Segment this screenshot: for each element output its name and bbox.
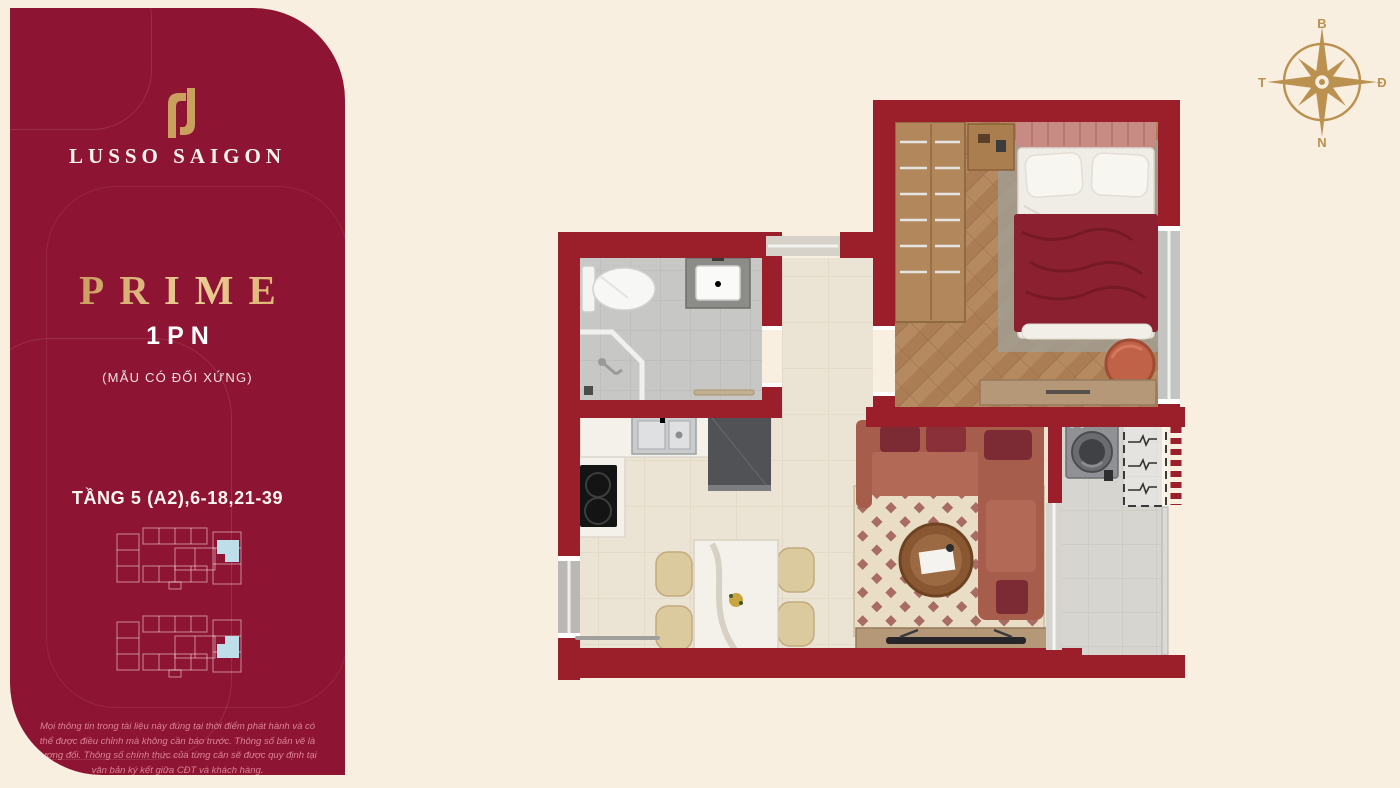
decorative-arc	[10, 8, 152, 130]
toilet	[582, 266, 655, 312]
kitchen-tall-cabinet	[708, 413, 771, 491]
page: LUSSO SAIGON PRIME 1PN (MẪU CÓ ĐỐI XỨNG)…	[0, 0, 1400, 788]
bedroom-dresser	[980, 380, 1156, 405]
plan-type: 1PN	[10, 322, 345, 351]
building-keyplan	[93, 526, 263, 694]
keyplan-floor-1	[117, 528, 241, 589]
compass-points	[1267, 27, 1377, 137]
coffee-table	[900, 524, 972, 596]
compass-south-label: N	[1317, 135, 1326, 150]
towel-rail	[694, 390, 754, 395]
compass-east-label: Đ	[1377, 75, 1386, 90]
dining-chair	[656, 552, 692, 596]
brand-panel: LUSSO SAIGON PRIME 1PN (MẪU CÓ ĐỐI XỨNG)…	[10, 8, 345, 775]
window-sill-rail	[575, 636, 660, 640]
plan-note: (MẪU CÓ ĐỐI XỨNG)	[10, 370, 345, 385]
cooktop	[580, 465, 617, 527]
floorplan	[550, 90, 1195, 690]
lusso-logo-icon	[156, 86, 200, 140]
compass-north-label: B	[1317, 16, 1326, 31]
keyplan-highlight-unit	[217, 540, 239, 562]
washing-machine	[1066, 420, 1118, 481]
floors-label: TẦNG 5 (A2),6-18,21-39	[10, 488, 345, 509]
plan-name: PRIME	[10, 266, 345, 314]
disclaimer-text: Mọi thông tin trong tài liệu này đúng tạ…	[38, 720, 317, 775]
keyplan-highlight-unit	[217, 636, 239, 658]
hallway-floor	[782, 258, 873, 427]
brand-name: LUSSO SAIGON	[10, 144, 345, 169]
bed	[1014, 120, 1158, 339]
compass-rose: B Đ N T	[1254, 14, 1390, 150]
wardrobe	[895, 122, 965, 322]
bathroom-sink	[686, 256, 750, 308]
compass-west-label: T	[1258, 75, 1266, 90]
dining-chair	[778, 602, 814, 646]
dining-chair	[656, 606, 692, 650]
technical-shaft	[1124, 422, 1166, 506]
glass-railing	[1162, 507, 1168, 655]
living-room	[854, 420, 1056, 654]
nightstand	[968, 124, 1014, 170]
dining-chair	[778, 548, 814, 592]
